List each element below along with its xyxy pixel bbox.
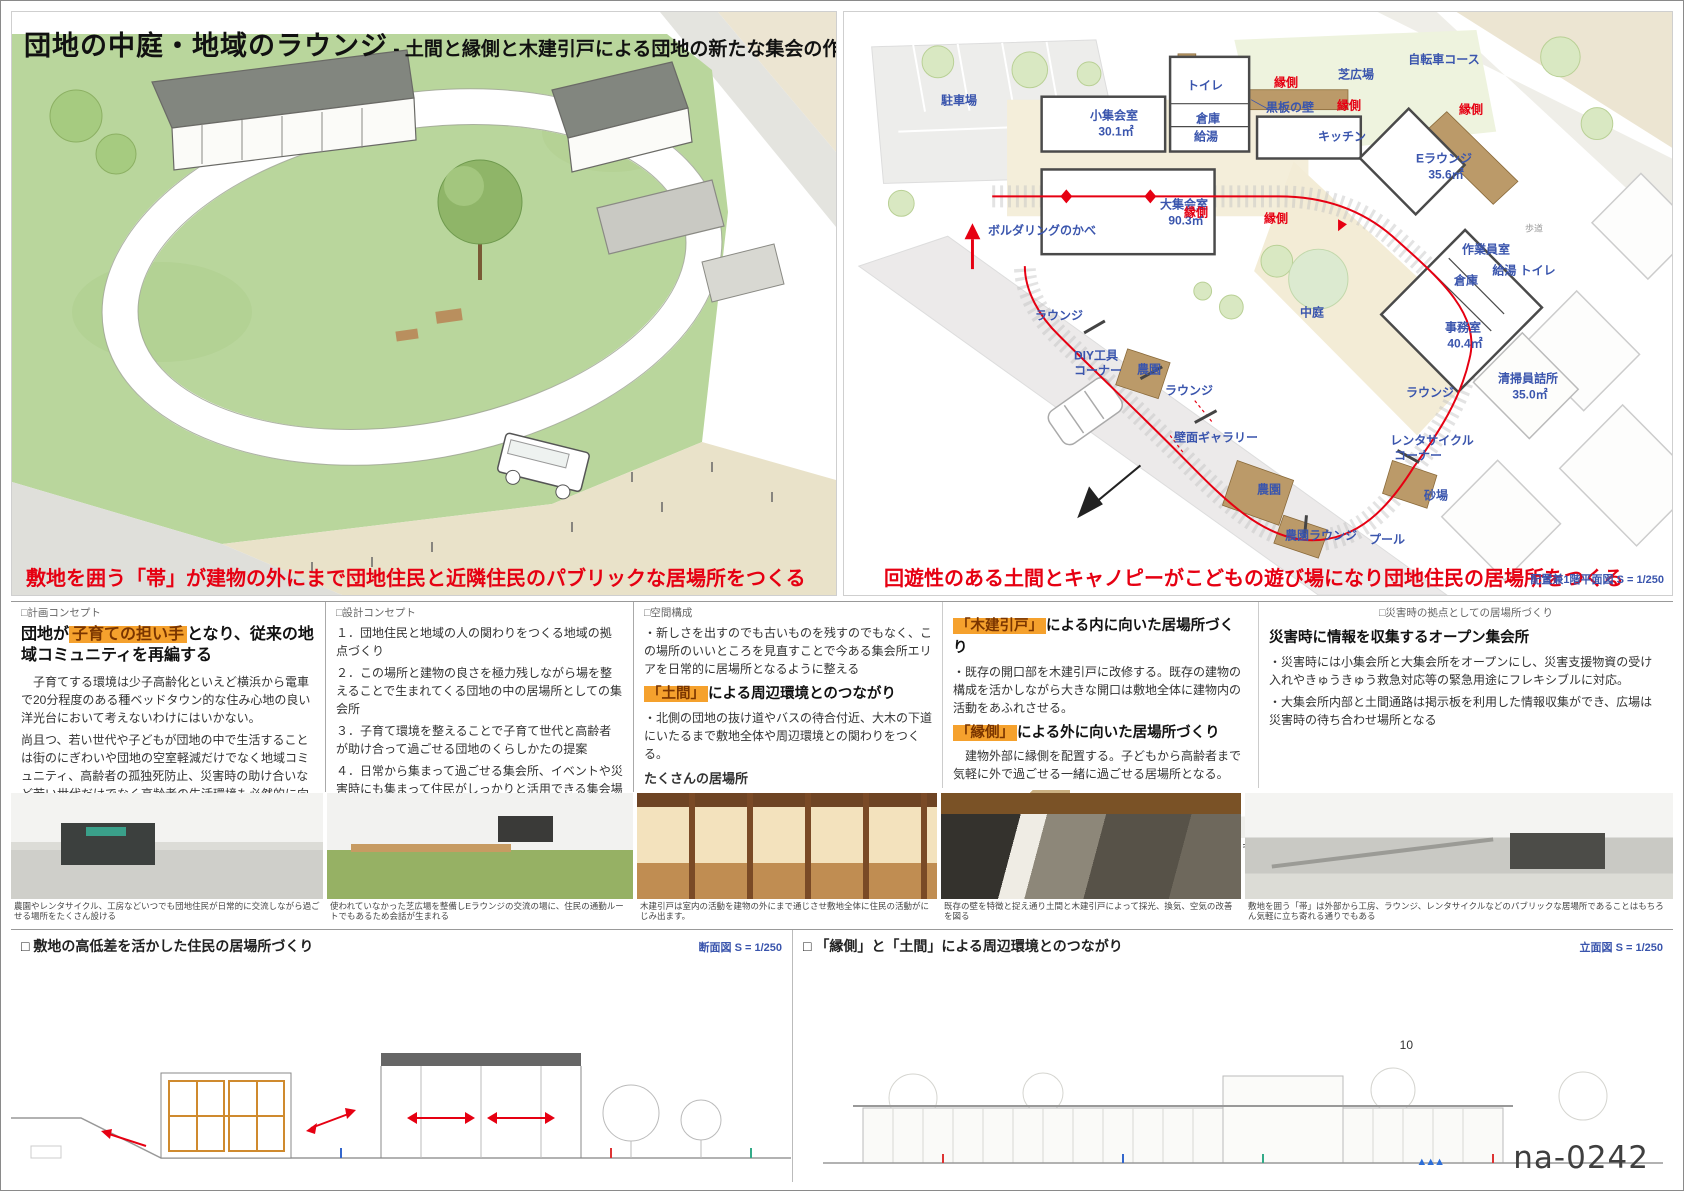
plan-label: 給湯 <box>1194 128 1218 145</box>
design-item: ２．この場所と建物の良さを極力残しながら場を整えることで生まれてくる団地の中の居… <box>336 664 623 718</box>
top-band: 団地の中庭・地域のラウンジ - 土間と縁側と木建引戸による団地の新たな集会の作法… <box>11 11 1673 596</box>
page-title: 団地の中庭・地域のラウンジ - 土間と縁側と木建引戸による団地の新たな集会の作法… <box>24 24 837 63</box>
photo-row: 農園やレンタサイクル、工房などいつでも団地住民が日常的に交流しながら過ごせる場所… <box>11 793 1673 923</box>
elevation-heading: □ 「縁側」と「土間」による周辺環境とのつながり <box>803 936 1123 956</box>
heading-highlight: 「土間」 <box>644 686 708 702</box>
plan-label: プール <box>1369 531 1405 548</box>
plan-label: 自転車コース <box>1408 51 1479 68</box>
plan-label: 40.4㎡ <box>1447 335 1482 352</box>
photo-caption: 使われていなかった芝広場を整備しEラウンジの交流の場に、住民の通勤ルートでもある… <box>327 901 633 921</box>
kidohikido-heading: 「木建引戸」による内に向いた居場所づくり <box>953 616 1248 660</box>
plan-label: ボルダリングのかべ <box>988 222 1096 239</box>
site-plan-scale-note: 配置兼1階平面図 S = 1/250 <box>1530 571 1664 587</box>
concept-band: □計画コンセプト 団地が子育ての担い手となり、従来の地域コミュニティを再編する … <box>11 601 1673 792</box>
plan-label: Eラウンジ <box>1416 150 1472 167</box>
perspective-panel: 団地の中庭・地域のラウンジ - 土間と縁側と木建引戸による団地の新たな集会の作法… <box>11 11 837 596</box>
doors-column: 「木建引戸」による内に向いた居場所づくり ・既存の開口部を木建引戸に改修する。既… <box>942 602 1258 788</box>
plan-label: 芝広場 <box>1338 66 1374 83</box>
plan-label: 中庭 <box>1300 304 1324 321</box>
section-drawing-panel: □ 敷地の高低差を活かした住民の居場所づくり 断面図 S = 1/250 <box>11 930 793 1182</box>
plan-label: 歩道 <box>1525 222 1543 235</box>
heading-text: 団地が <box>21 626 69 643</box>
design-item: １．団地住民と地域の人の関わりをつくる地域の拠点づくり <box>336 624 623 660</box>
plan-label-engawa: 縁側 <box>1184 204 1208 221</box>
perspective-drawing <box>12 12 836 595</box>
section-drawing <box>11 958 791 1178</box>
plan-label: 小集会室 <box>1090 107 1138 124</box>
doma-heading: 「土間」による周辺環境とのつながり <box>644 684 932 706</box>
heading-highlight: 子育ての担い手 <box>69 626 187 643</box>
section-tag: □災害時の拠点としての居場所づくり <box>1269 606 1663 622</box>
right-concept-columns: □空間構成 ・新しさを出すのでも古いものを残すのでもなく、この場所のいいところを… <box>634 602 1673 788</box>
plan-label: 35.0㎡ <box>1512 386 1547 403</box>
site-plan-panel: 駐車場 自転車コース トイレ 小集会室 30.1㎡ 倉庫 給湯 黒板の壁 キッチ… <box>843 11 1673 596</box>
plan-label: 壁面ギャラリー <box>1174 429 1258 446</box>
plan-label: コーナー <box>1394 447 1442 464</box>
heading-text: による外に向いた居場所づくり <box>1017 725 1220 741</box>
body-paragraph: ・既存の開口部を木建引戸に改修する。既存の建物の構成を活かしながら大きな開口は敷… <box>953 663 1248 717</box>
body-paragraph: 建物外部に縁側を配置する。子どもから高齢者まで気軽に外で過ごせる一緒に過ごせる居… <box>953 747 1248 783</box>
photo-item: 農園やレンタサイクル、工房などいつでも団地住民が日常的に交流しながら過ごせる場所… <box>11 793 323 923</box>
site-plan-caption: 回遊性のある土間とキャノピーがこどもの遊び場になり団地住民の居場所をつくる <box>884 562 1624 591</box>
plan-label: 給湯 トイレ <box>1492 262 1555 279</box>
plan-label-engawa: 縁側 <box>1337 97 1361 114</box>
plan-label: コーナー <box>1074 362 1122 379</box>
section-tag: □設計コンセプト <box>336 606 623 622</box>
photo-caption: 木建引戸は室内の活動を建物の外にまで通じさせ敷地全体に住民の活動がにじみ出ます。 <box>637 901 937 921</box>
plan-concept-heading: 団地が子育ての担い手となり、従来の地域コミュニティを再編する <box>21 624 315 667</box>
photo-item: 既存の壁を特徴と捉え通り土間と木建引戸によって採光、換気、空気の改善を図る <box>941 793 1241 923</box>
photo-rendering <box>941 793 1241 899</box>
photo-rendering <box>11 793 323 899</box>
plan-label: ラウンジ <box>1406 384 1454 401</box>
plan-label: キッチン <box>1318 128 1366 145</box>
photo-item: 敷地を囲う「帯」は外部から工房、ラウンジ、レンタサイクルなどのパブリックな居場所… <box>1245 793 1673 923</box>
photo-caption: 農園やレンタサイクル、工房などいつでも団地住民が日常的に交流しながら過ごせる場所… <box>11 901 323 921</box>
design-item: ３．子育て環境を整えることで子育て世代と高齢者が助け合って過ごせる団地のくらしか… <box>336 722 623 758</box>
board-id-watermark: na-0242 <box>1513 1140 1649 1176</box>
plan-label: 倉庫 <box>1454 272 1478 289</box>
heading-text: による周辺環境とのつながり <box>708 686 896 702</box>
section-header: □ 敷地の高低差を活かした住民の居場所づくり 断面図 S = 1/250 <box>11 930 792 958</box>
plan-label: 作業員室 <box>1462 241 1510 258</box>
photo-rendering <box>637 793 937 899</box>
heading-highlight: 「縁側」 <box>953 725 1017 741</box>
elevation-header: □ 「縁側」と「土間」による周辺環境とのつながり 立面図 S = 1/250 <box>793 930 1673 958</box>
photo-caption: 敷地を囲う「帯」は外部から工房、ラウンジ、レンタサイクルなどのパブリックな居場所… <box>1245 901 1673 921</box>
section-tag: □空間構成 <box>644 606 932 622</box>
plan-label: 倉庫 <box>1196 110 1220 127</box>
plan-label: 農園ラウンジ <box>1285 527 1357 544</box>
title-subtitle: - 土間と縁側と木建引戸による団地の新たな集会の作法 - <box>388 39 837 60</box>
right-concept-group: □空間構成 ・新しさを出すのでも古いものを残すのでもなく、この場所のいいところを… <box>633 602 1673 792</box>
presentation-board: 団地の中庭・地域のラウンジ - 土間と縁側と木建引戸による団地の新たな集会の作法… <box>0 0 1684 1191</box>
plan-label: ラウンジ <box>1035 307 1083 324</box>
engawa-heading: 「縁側」による外に向いた居場所づくり <box>953 723 1248 745</box>
elevation-scale-note: 立面図 S = 1/250 <box>1580 939 1663 955</box>
plan-label-engawa: 縁側 <box>1264 210 1288 227</box>
design-concept-column: □設計コンセプト １．団地住民と地域の人の関わりをつくる地域の拠点づくり ２．こ… <box>325 602 633 792</box>
body-paragraph: ・北側の団地の抜け道やバスの待合付近、大木の下道にいたるまで敷地全体や周辺環境と… <box>644 709 932 763</box>
plan-label: 駐車場 <box>941 92 977 109</box>
tree-marks: ▲▲▲ <box>1416 1156 1443 1168</box>
spatial-column: □空間構成 ・新しさを出すのでも古いものを残すのでもなく、この場所のいいところを… <box>634 602 942 788</box>
body-paragraph: ・災害時には小集会所と大集会所をオープンにし、災害支援物資の受け入れやきゅうきゅ… <box>1269 653 1663 689</box>
body-paragraph: ・大集会所内部と土間通路は掲示板を利用した情報収集ができ、広場は災害時の待ち合わ… <box>1269 693 1663 729</box>
plan-label: トイレ <box>1187 77 1223 94</box>
photo-rendering <box>1245 793 1673 899</box>
plan-label: 農園 <box>1257 481 1281 498</box>
photo-item: 使われていなかった芝広場を整備しEラウンジの交流の場に、住民の通勤ルートでもある… <box>327 793 633 923</box>
bottom-band: □ 敷地の高低差を活かした住民の居場所づくり 断面図 S = 1/250 <box>11 929 1673 1182</box>
body-paragraph: ・新しさを出すのでも古いものを残すのでもなく、この場所のいいところを見直すことで… <box>644 624 932 678</box>
section-tag: □計画コンセプト <box>21 606 315 622</box>
page-number: 10 <box>1400 1038 1413 1052</box>
section-heading: □ 敷地の高低差を活かした住民の居場所づくり <box>21 936 313 956</box>
plan-label: 農園 <box>1137 361 1161 378</box>
elevation-drawing-panel: □ 「縁側」と「土間」による周辺環境とのつながり 立面図 S = 1/250 1… <box>793 930 1673 1182</box>
photo-item: 木建引戸は室内の活動を建物の外にまで通じさせ敷地全体に住民の活動がにじみ出ます。 <box>637 793 937 923</box>
heading-highlight: 「木建引戸」 <box>953 618 1046 634</box>
disaster-heading: 災害時に情報を収集するオープン集会所 <box>1269 628 1663 650</box>
plan-label: 清掃員詰所 <box>1498 370 1558 387</box>
section-scale-note: 断面図 S = 1/250 <box>699 939 782 955</box>
title-main: 団地の中庭・地域のラウンジ <box>24 31 388 61</box>
many-places-label: たくさんの居場所 <box>644 769 932 789</box>
plan-label-engawa: 縁側 <box>1459 101 1483 118</box>
plan-label: 30.1㎡ <box>1098 123 1133 140</box>
disaster-column: □災害時の拠点としての居場所づくり 災害時に情報を収集するオープン集会所 ・災害… <box>1258 602 1673 788</box>
plan-concept-column: □計画コンセプト 団地が子育ての担い手となり、従来の地域コミュニティを再編する … <box>11 602 325 792</box>
body-paragraph: 子育てする環境は少子高齢化といえど横浜から電車で20分程度のある種ベッドタウン的… <box>21 673 315 727</box>
plan-label: 黒板の壁 <box>1266 99 1314 116</box>
plan-label: 事務室 <box>1445 319 1481 336</box>
plan-label: ラウンジ <box>1165 382 1213 399</box>
photo-rendering <box>327 793 633 899</box>
plan-label-engawa: 縁側 <box>1274 74 1298 91</box>
plan-label: 砂場 <box>1424 487 1448 504</box>
perspective-caption: 敷地を囲う「帯」が建物の外にまで団地住民と近隣住民のパブリックな居場所をつくる <box>26 562 806 591</box>
photo-caption: 既存の壁を特徴と捉え通り土間と木建引戸によって採光、換気、空気の改善を図る <box>941 901 1241 921</box>
plan-label: 35.6㎡ <box>1428 166 1463 183</box>
